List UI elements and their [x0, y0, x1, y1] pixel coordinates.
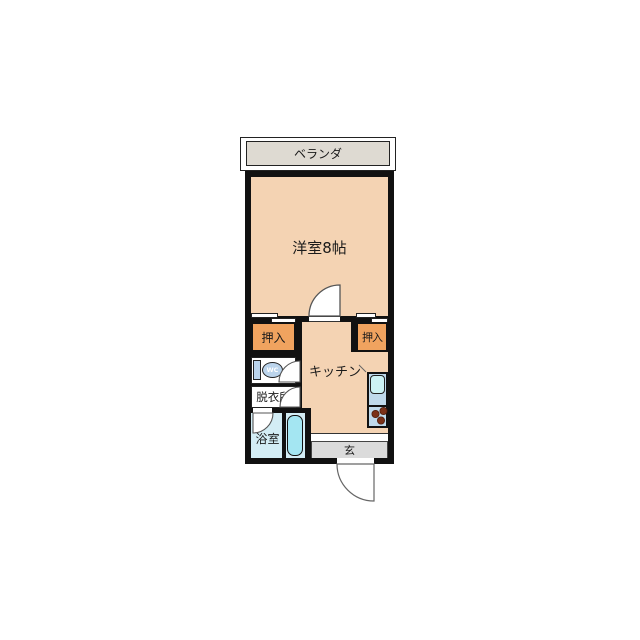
door-swing-icon	[337, 464, 374, 501]
dressing-room: 脱衣所	[251, 386, 296, 408]
closet-left: 押入	[251, 322, 296, 352]
balcony-label: ベランダ	[294, 145, 342, 162]
sink-icon	[370, 375, 385, 394]
wall-top	[245, 171, 394, 177]
entrance-area: 玄	[311, 441, 388, 458]
counter-divider	[367, 405, 388, 407]
closet-right: 押入	[356, 322, 388, 352]
wall-left-column	[296, 316, 302, 413]
main-room-door-opening	[309, 316, 340, 322]
toilet-tank-icon	[253, 360, 261, 380]
entrance-step	[311, 433, 388, 441]
balcony-area: ベランダ	[246, 141, 390, 166]
bathroom-label: 浴室	[252, 430, 283, 446]
bathtub-icon	[287, 415, 303, 456]
page: { "floorplan": { "balcony_label": "ベランダ"…	[0, 0, 640, 640]
toilet-icon: WC	[262, 362, 283, 378]
entry-door-opening	[337, 458, 374, 464]
main-room-label: 洋室8帖	[292, 237, 347, 258]
main-room: 洋室8帖	[251, 177, 388, 317]
wall-right	[388, 171, 394, 464]
kitchen-label: キッチン	[302, 360, 368, 380]
